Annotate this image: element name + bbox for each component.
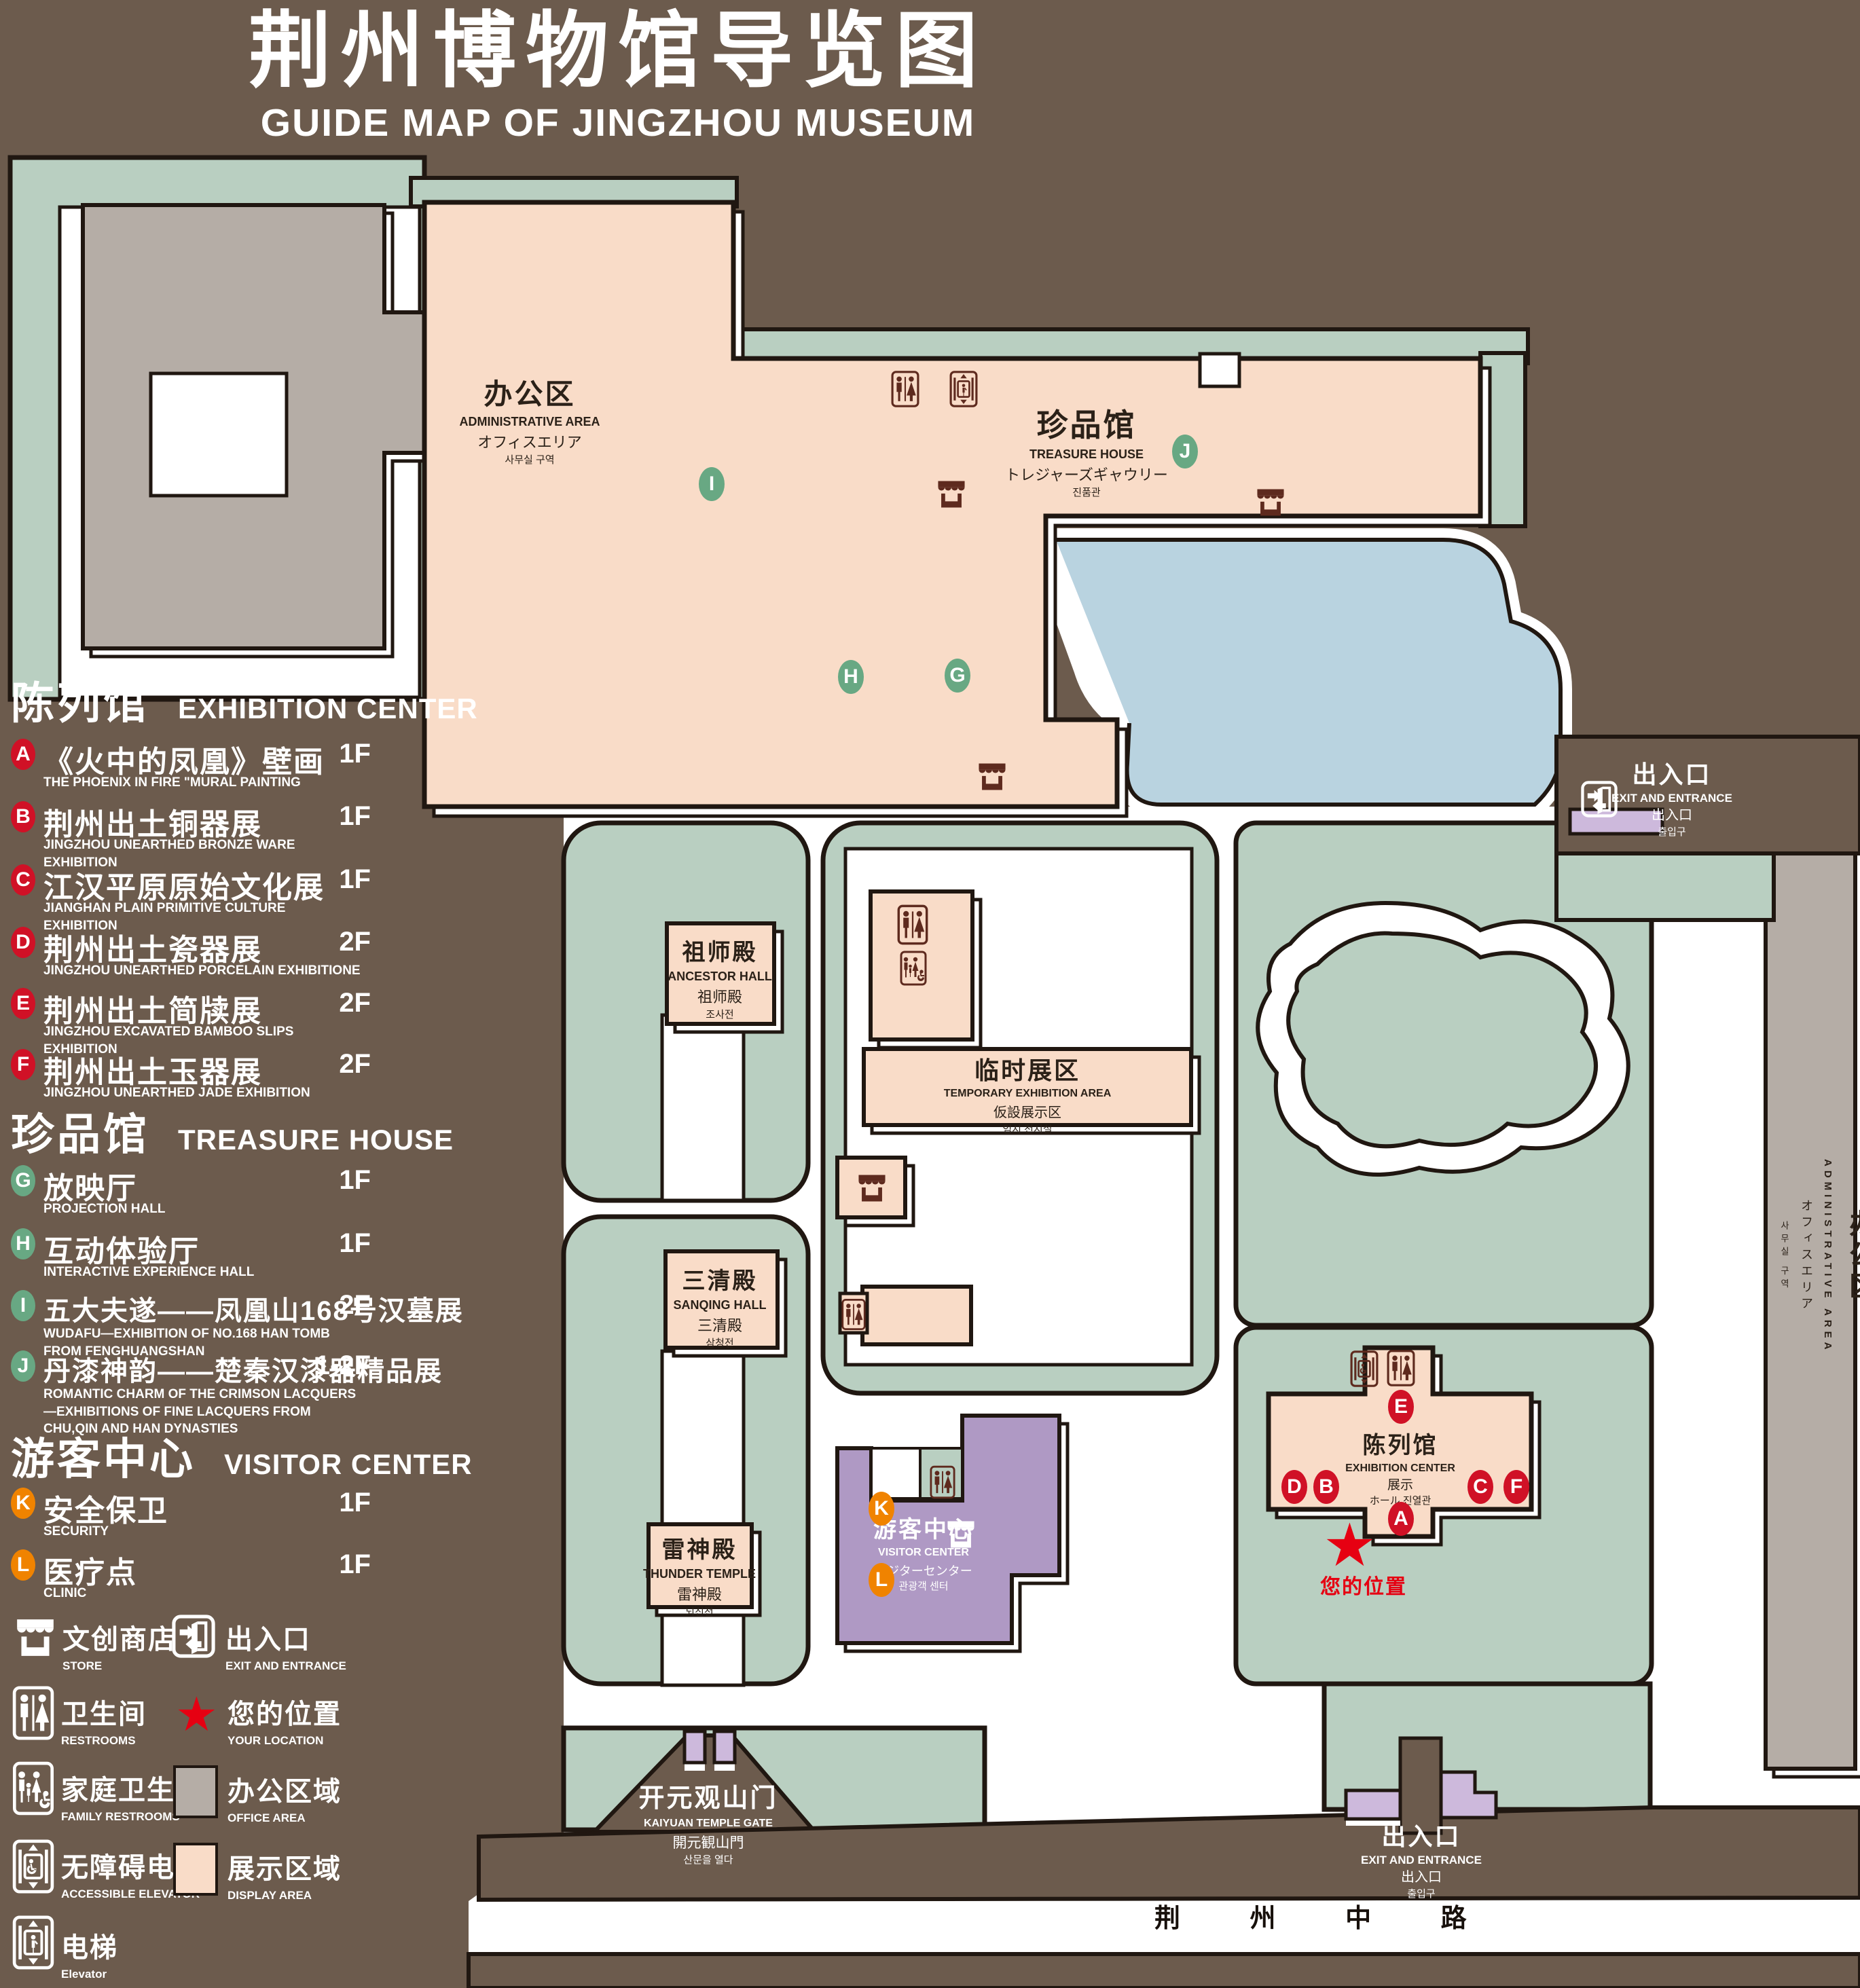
label-exit-bottom: 出入口 EXIT AND ENTRANCE 出入口 출입구 bbox=[1319, 1821, 1523, 1901]
legend-section-treasure: 珍品馆 TREASURE HOUSE bbox=[11, 1100, 454, 1162]
legend-symbol-exit: 出入口 EXIT AND ENTRANCE bbox=[225, 1617, 346, 1673]
legend-item-j: J 丹漆神韵——楚秦汉漆器精品展 ROMANTIC CHARM OF THE C… bbox=[11, 1349, 391, 1424]
legend-badge-j: J bbox=[11, 1350, 35, 1382]
legend-badge-i: I bbox=[11, 1290, 35, 1321]
legend-section-visitor: 游客中心 VISITOR CENTER bbox=[11, 1424, 473, 1487]
store-icon bbox=[856, 1173, 888, 1203]
your-location-star-icon: ★ bbox=[1323, 1515, 1376, 1575]
label-sanqing-hall: 三清殿 SANQING HALL 三清殿 삼청전 bbox=[618, 1267, 822, 1350]
south-pavilion bbox=[862, 1287, 971, 1344]
label-thunder-temple: 雷神殿 THUNDER TEMPLE 雷神殿 뇌신전 bbox=[598, 1536, 801, 1619]
restroom-icon bbox=[930, 1465, 955, 1499]
legend-badge-d: D bbox=[11, 927, 35, 958]
store-icon bbox=[945, 1520, 977, 1549]
legend-section-exhibition: 陈列馆 EXHIBITION CENTER bbox=[11, 669, 478, 731]
legend-symbol-store: 文创商店 STORE bbox=[62, 1617, 177, 1673]
family-restroom-icon bbox=[900, 951, 927, 986]
legend-badge-g: G bbox=[11, 1165, 35, 1196]
visitor-courtyard bbox=[871, 1448, 920, 1498]
store-icon bbox=[1255, 487, 1286, 517]
your-location-label: 您的位置 bbox=[1289, 1570, 1438, 1600]
map-marker-b: B bbox=[1313, 1470, 1339, 1504]
treasure-house-notch bbox=[1200, 354, 1239, 386]
legend-badge-a: A bbox=[11, 739, 35, 770]
exit-bottom-gate-left bbox=[1346, 1790, 1400, 1819]
path-ancestor bbox=[662, 1015, 744, 1200]
gate-pillar-left bbox=[685, 1731, 705, 1763]
exit-icon bbox=[172, 1615, 215, 1658]
store-icon bbox=[977, 762, 1008, 792]
exit-bottom-path bbox=[1400, 1738, 1441, 1833]
gate-pillar-shadow-l bbox=[685, 1764, 705, 1771]
map-marker-l: L bbox=[869, 1563, 894, 1597]
legend-badge-f: F bbox=[11, 1049, 35, 1080]
exit-icon bbox=[1581, 781, 1618, 817]
elevator-icon bbox=[12, 1915, 54, 1970]
label-admin-right: 办公区 ADMINISTRATIVE AREA オフィスエリア 사무실 구역 bbox=[1771, 883, 1860, 1630]
map-marker-e: E bbox=[1388, 1390, 1414, 1424]
legend-badge-e: E bbox=[11, 988, 35, 1019]
legend-item-l: L 医疗点 CLINIC 1F bbox=[11, 1548, 391, 1623]
legend-badge-c: C bbox=[11, 864, 35, 896]
legend-symbol-office: 办公区域 OFFICE AREA bbox=[227, 1769, 342, 1825]
office-area-swatch bbox=[173, 1765, 218, 1818]
lake bbox=[1056, 540, 1561, 805]
guide-map-poster: 荆州博物馆导览图 GUIDE MAP OF JINGZHOU MUSEUM bbox=[0, 0, 1860, 1988]
restroom-icon bbox=[841, 1298, 866, 1331]
legend-badge-b: B bbox=[11, 801, 35, 832]
restroom-icon bbox=[1387, 1348, 1415, 1388]
label-admin-topleft: 办公区 ADMINISTRATIVE AREA オフィスエリア 사무실 구역 bbox=[384, 377, 676, 466]
accessible-elevator-icon bbox=[12, 1839, 54, 1894]
store-icon bbox=[936, 479, 967, 509]
garden-island bbox=[1288, 934, 1596, 1147]
path-sanqing bbox=[662, 1351, 744, 1526]
display-area-swatch bbox=[173, 1843, 218, 1896]
legend-symbol-restrooms: 卫生间 RESTROOMS bbox=[61, 1692, 147, 1748]
family-restroom-icon bbox=[12, 1761, 54, 1816]
map-marker-i: I bbox=[699, 467, 725, 501]
legend-symbol-location: 您的位置 YOUR LOCATION bbox=[227, 1692, 342, 1748]
map-marker-h: H bbox=[838, 660, 864, 694]
label-road: 荆 州 中 路 bbox=[1154, 1897, 1498, 1934]
map-marker-k: K bbox=[869, 1492, 894, 1526]
label-ancestor-hall: 祖师殿 ANCESTOR HALL 祖师殿 조사전 bbox=[618, 938, 822, 1021]
label-temporary-exhibition: 临时展区 TEMPORARY EXHIBITION AREA 仮設展示区 임시 … bbox=[878, 1055, 1177, 1137]
path-thunder bbox=[662, 1609, 744, 1685]
map-marker-c: C bbox=[1467, 1470, 1493, 1504]
accessible-elevator-icon bbox=[1350, 1350, 1379, 1388]
map-marker-a: A bbox=[1388, 1502, 1414, 1536]
map-marker-j: J bbox=[1172, 435, 1198, 468]
map-marker-f: F bbox=[1503, 1470, 1529, 1504]
legend-badge-k: K bbox=[11, 1488, 35, 1519]
restroom-icon bbox=[891, 370, 919, 408]
map-marker-d: D bbox=[1281, 1470, 1307, 1504]
road-band bbox=[469, 1954, 1860, 1988]
map-marker-g: G bbox=[945, 659, 970, 693]
label-kaiyuan-gate: 开元观山门 KAIYUAN TEMPLE GATE 開元観山門 산문을 열다 bbox=[606, 1783, 810, 1867]
gate-pillar-shadow-r bbox=[714, 1764, 735, 1771]
elevator-icon bbox=[949, 370, 978, 408]
legend-symbol-display: 展示区域 DISPLAY AREA bbox=[227, 1847, 342, 1902]
legend-badge-l: L bbox=[11, 1549, 35, 1581]
restroom-icon bbox=[897, 904, 928, 945]
restroom-ic bbox=[12, 1685, 54, 1741]
your-location-star-icon: ★ bbox=[175, 1691, 218, 1738]
gate-pillar-right bbox=[714, 1731, 735, 1763]
store-icon bbox=[14, 1617, 57, 1658]
legend-symbol-elevator: 电梯 Elevator bbox=[61, 1926, 118, 1981]
legend-badge-h: H bbox=[11, 1228, 35, 1259]
admin-courtyard-notch bbox=[151, 373, 287, 496]
